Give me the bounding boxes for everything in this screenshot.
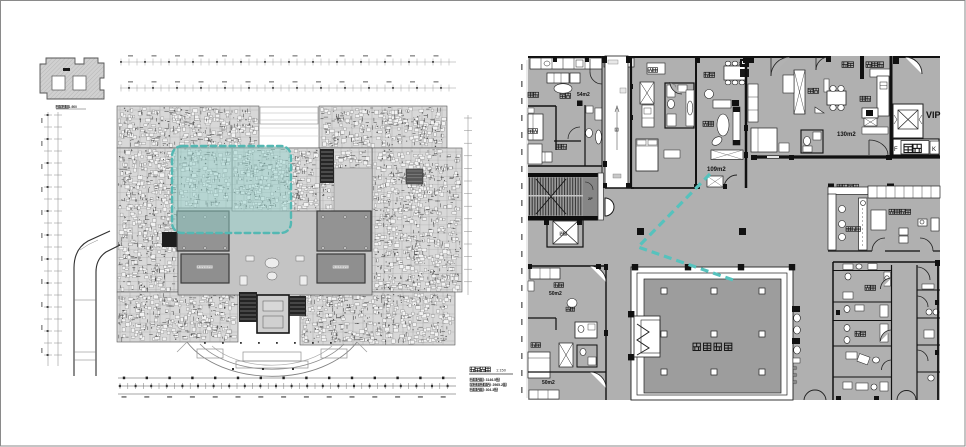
svg-text:2F: 2F [588, 196, 593, 201]
svg-text:1:500: 1:500 [69, 105, 77, 109]
svg-text:F: F [894, 147, 898, 153]
svg-text:: 304.3: : 304.3 [484, 388, 495, 392]
svg-text:1:150: 1:150 [496, 368, 507, 373]
svg-text:: 2965.2: : 2965.2 [490, 383, 503, 387]
svg-text:K: K [932, 147, 936, 153]
svg-text:109m2: 109m2 [707, 167, 726, 173]
svg-text:50m2: 50m2 [542, 380, 555, 386]
svg-text:: 3146.5: : 3146.5 [484, 378, 497, 382]
svg-text:130m2: 130m2 [837, 132, 856, 138]
svg-text:VIP: VIP [926, 110, 941, 120]
svg-text:54m2: 54m2 [577, 92, 590, 98]
svg-text:50m2: 50m2 [549, 291, 562, 297]
